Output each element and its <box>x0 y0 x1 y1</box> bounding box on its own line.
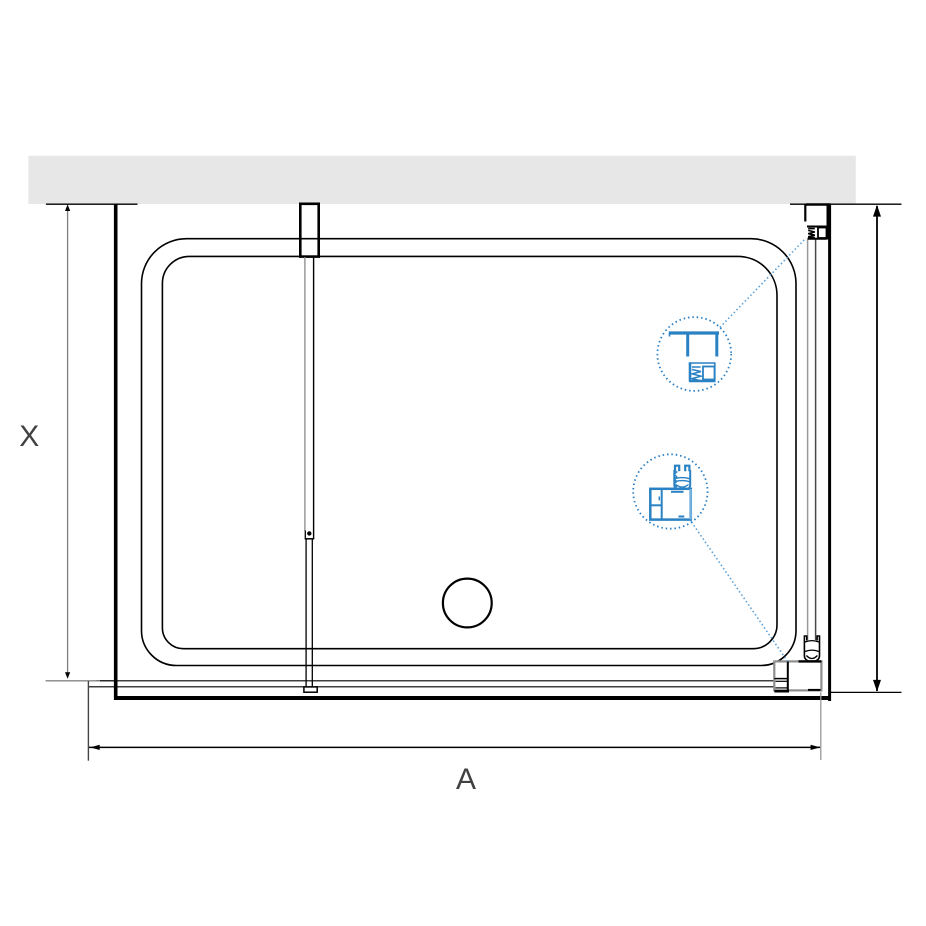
svg-text:X: X <box>19 420 39 453</box>
svg-text:A: A <box>456 763 476 796</box>
